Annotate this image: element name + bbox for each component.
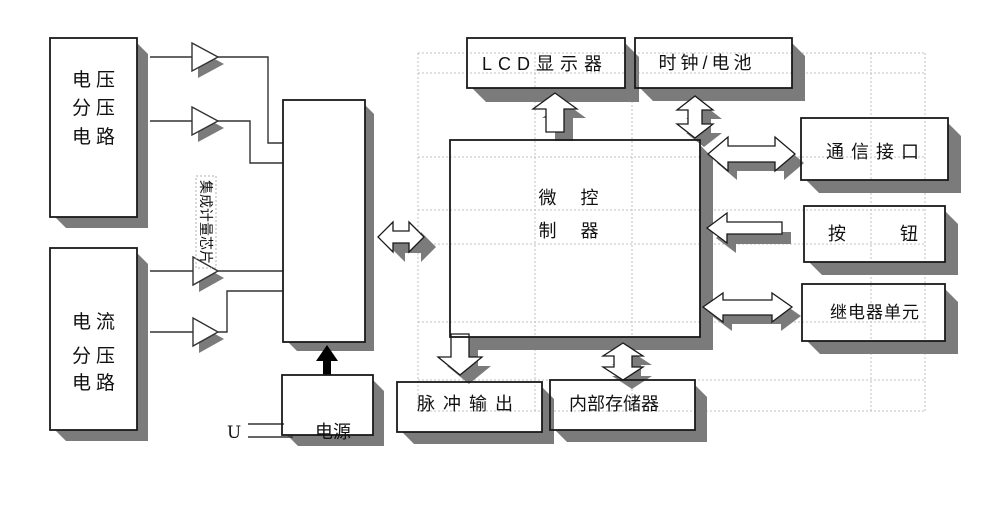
button-label: 按 钮	[828, 224, 918, 244]
voltage-input-label: U	[227, 423, 241, 443]
energy-meter-block-diagram: 电压 分压 电路 电流 分压 电路 集成计量芯片 微 控 制 器 LCD显示器 …	[0, 0, 982, 526]
current-divider-label: 分压	[72, 345, 120, 367]
comm-interface-label: 通信接口	[826, 142, 926, 162]
mcu-comm-arrow-icon	[708, 137, 804, 180]
lcd-display-label: LCD显示器	[482, 54, 608, 74]
button-mcu-arrow-icon	[707, 213, 791, 253]
voltage-divider-label: 分压	[72, 97, 120, 119]
metering-chip-box	[283, 100, 365, 342]
pulse-output-label: 脉冲输出	[417, 394, 521, 414]
microcontroller-label: 制 器	[539, 221, 602, 241]
mcu-relay-arrow-icon	[703, 293, 801, 331]
internal-memory-label: 内部存储器	[569, 394, 659, 414]
metering-chip-label: 集成计量芯片	[198, 180, 214, 264]
microcontroller-label: 微 控	[539, 188, 602, 208]
diagram-canvas: 电压 分压 电路 电流 分压 电路 集成计量芯片 微 控 制 器 LCD显示器 …	[0, 0, 982, 526]
chip-mcu-arrow-icon	[378, 222, 436, 262]
voltage-divider-label: 电路	[72, 126, 120, 148]
voltage-divider-label: 电压	[72, 69, 120, 91]
clock-battery-label: 时钟/电池	[658, 53, 755, 73]
wires	[150, 57, 293, 437]
current-divider-label: 电路	[72, 372, 120, 394]
current-divider-box	[50, 248, 137, 430]
current-divider-label: 电流	[72, 311, 120, 333]
relay-unit-label: 继电器单元	[830, 303, 920, 322]
power-supply-label: 电源	[315, 422, 351, 442]
